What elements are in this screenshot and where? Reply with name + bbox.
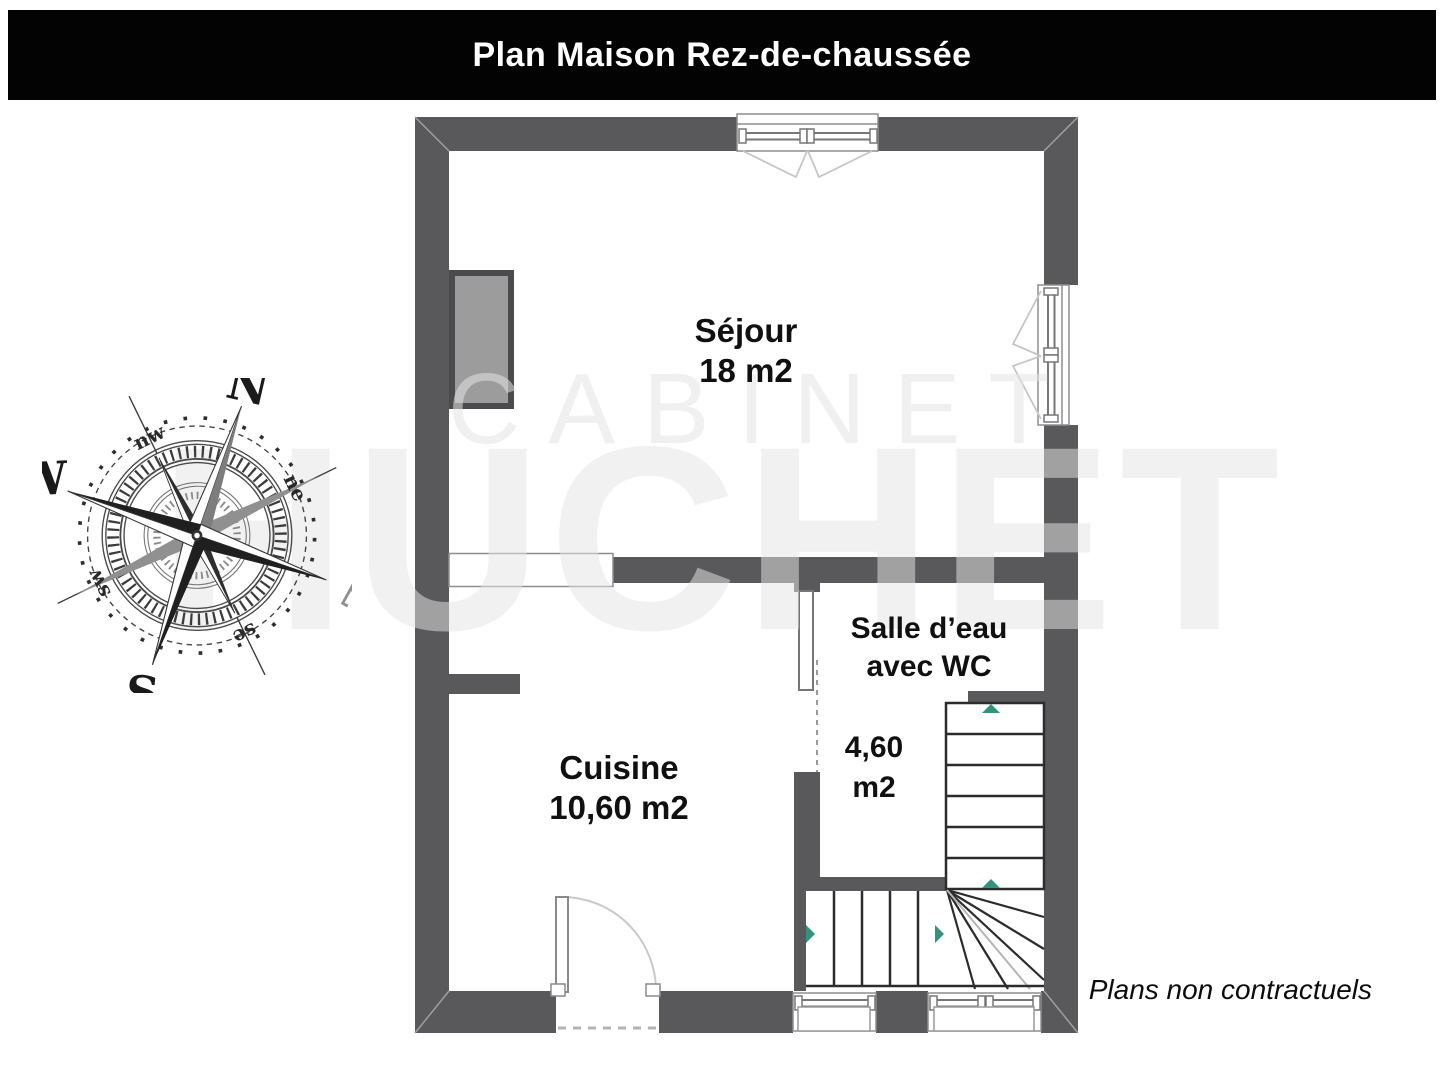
window-north [737,114,878,177]
compass-east: E [331,573,352,625]
entry-door [551,897,660,1028]
title-bar: Plan Maison Rez-de-chaussée [8,10,1436,100]
window-south-1 [793,993,876,1031]
compass-northwest: nw [129,419,169,455]
pocket-door [799,591,817,772]
window-south-2 [928,993,1041,1031]
compass-west: W [42,450,69,507]
compass-rose: N S W E nw ne se sw [42,378,352,693]
compass-south: S [124,664,162,693]
compass-northeast: ne [279,470,313,505]
staircase [806,703,1044,989]
fireplace-block [452,273,511,406]
page-title: Plan Maison Rez-de-chaussée [472,36,971,75]
window-east [1013,285,1069,425]
compass-north: N [222,378,275,417]
footer-note: Plans non contractuels [1089,974,1372,1006]
compass-southwest: sw [81,565,115,602]
wall-opening [449,554,613,587]
